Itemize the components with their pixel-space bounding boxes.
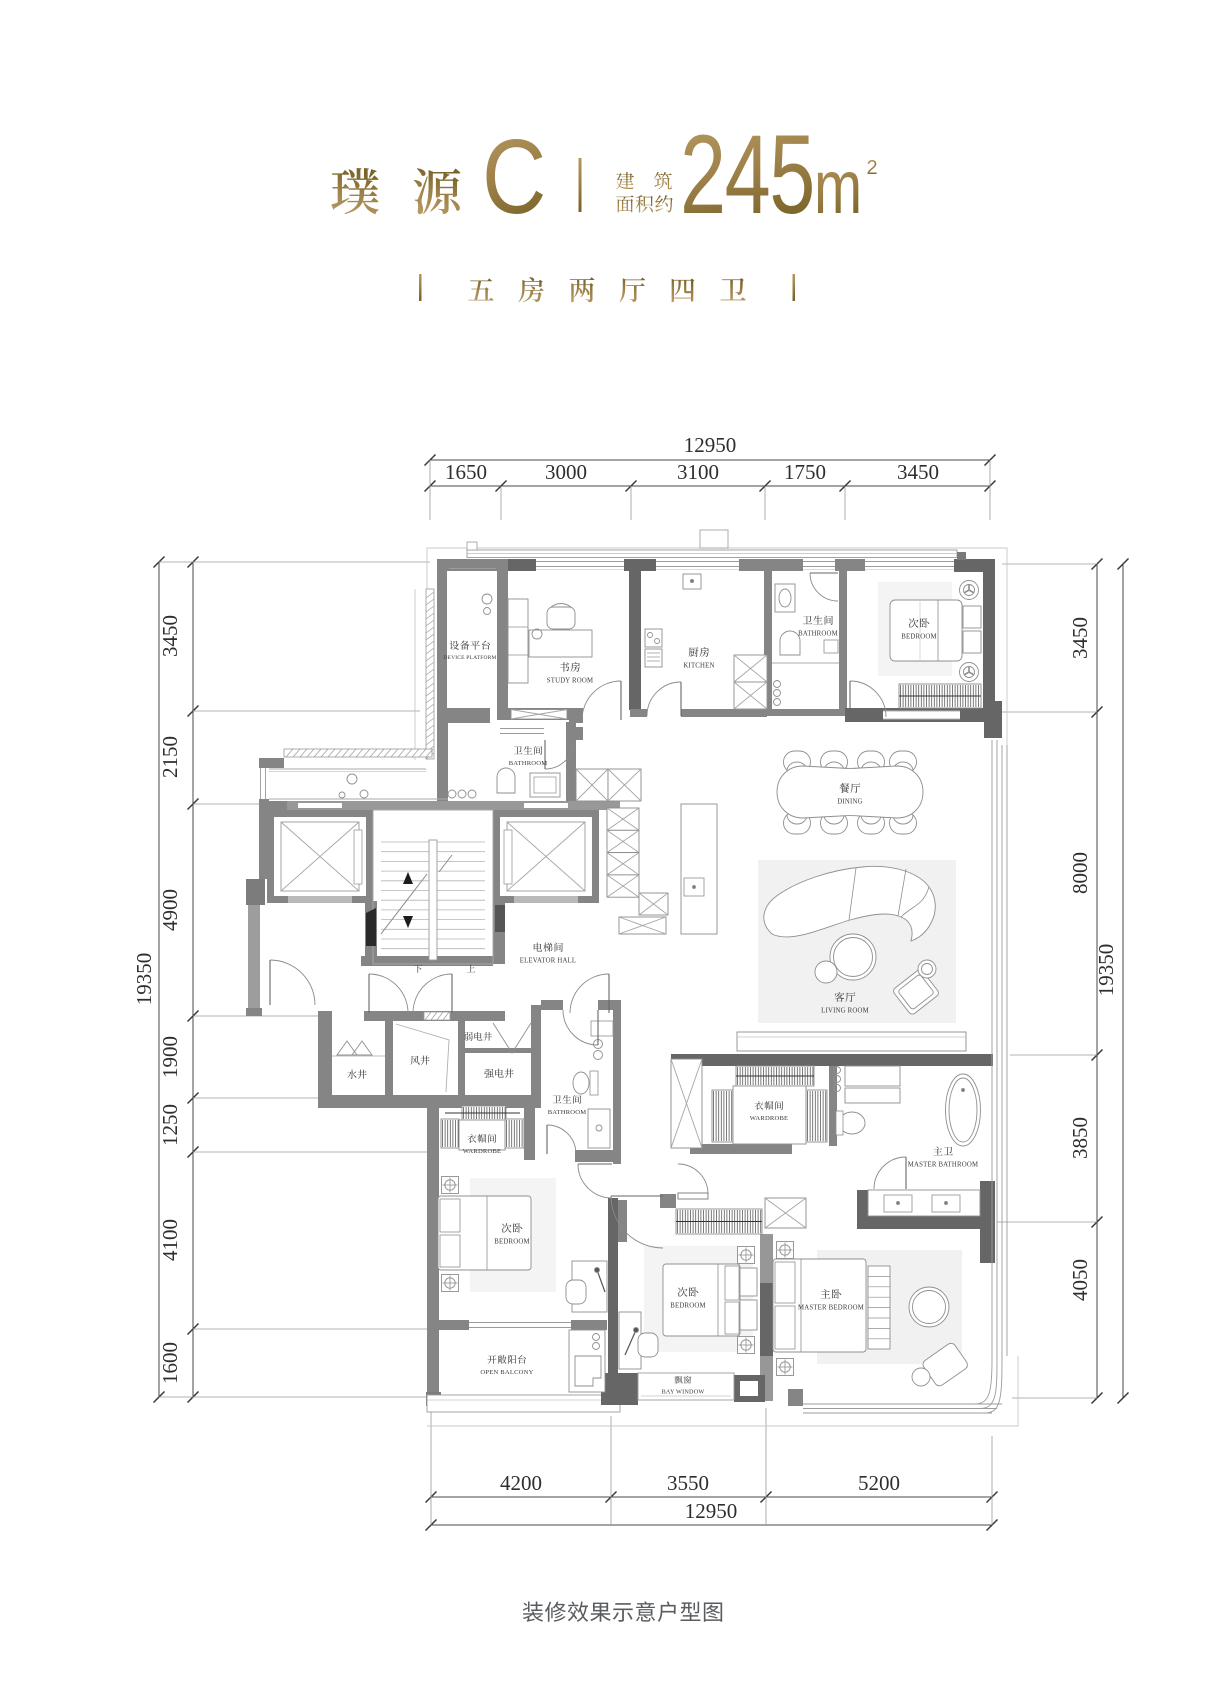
svg-text:3450: 3450 <box>1068 617 1092 659</box>
svg-text:1900: 1900 <box>158 1036 182 1078</box>
svg-text:19350: 19350 <box>132 953 156 1006</box>
svg-text:2: 2 <box>866 157 877 179</box>
svg-text:8000: 8000 <box>1068 852 1092 894</box>
svg-text:BAY WINDOW: BAY WINDOW <box>662 1389 705 1396</box>
svg-text:BATHROOM: BATHROOM <box>798 630 838 637</box>
svg-text:BATHROOM: BATHROOM <box>548 1109 587 1116</box>
svg-text:2150: 2150 <box>158 736 182 778</box>
svg-text:245: 245 <box>680 112 814 237</box>
svg-text:1250: 1250 <box>158 1104 182 1146</box>
svg-text:BATHROOM: BATHROOM <box>509 760 548 767</box>
svg-text:C: C <box>482 117 546 236</box>
svg-text:4200: 4200 <box>500 1471 542 1495</box>
svg-text:MASTER BEDROOM: MASTER BEDROOM <box>798 1304 864 1311</box>
svg-text:LIVING ROOM: LIVING ROOM <box>821 1007 869 1014</box>
svg-text:OPEN BALCONY: OPEN BALCONY <box>480 1369 533 1376</box>
svg-text:DINING: DINING <box>837 798 862 805</box>
svg-text:3100: 3100 <box>677 460 719 484</box>
svg-text:DEVICE PLATFORM: DEVICE PLATFORM <box>443 655 496 661</box>
svg-text:12950: 12950 <box>684 433 737 457</box>
svg-text:KITCHEN: KITCHEN <box>683 662 714 669</box>
svg-text:BEDROOM: BEDROOM <box>670 1302 705 1309</box>
svg-text:STUDY ROOM: STUDY ROOM <box>547 677 594 684</box>
svg-text:1750: 1750 <box>784 460 826 484</box>
svg-text:4050: 4050 <box>1068 1259 1092 1301</box>
svg-text:BEDROOM: BEDROOM <box>494 1238 529 1245</box>
svg-text:ELEVATOR HALL: ELEVATOR HALL <box>520 957 577 964</box>
svg-text:WARDROBE: WARDROBE <box>750 1115 789 1122</box>
svg-text:1600: 1600 <box>158 1342 182 1384</box>
svg-text:3450: 3450 <box>897 460 939 484</box>
svg-text:3000: 3000 <box>545 460 587 484</box>
svg-text:m: m <box>814 145 862 229</box>
svg-text:WARDROBE: WARDROBE <box>463 1148 502 1155</box>
svg-text:19350: 19350 <box>1094 944 1118 997</box>
svg-text:3450: 3450 <box>158 615 182 657</box>
svg-text:3550: 3550 <box>667 1471 709 1495</box>
svg-text:MASTER BATHROOM: MASTER BATHROOM <box>908 1161 978 1168</box>
svg-text:5200: 5200 <box>858 1471 900 1495</box>
svg-text:4100: 4100 <box>158 1219 182 1261</box>
svg-text:BEDROOM: BEDROOM <box>901 633 936 640</box>
svg-text:3850: 3850 <box>1068 1117 1092 1159</box>
svg-text:12950: 12950 <box>685 1499 738 1523</box>
svg-text:1650: 1650 <box>445 460 487 484</box>
svg-text:4900: 4900 <box>158 889 182 931</box>
